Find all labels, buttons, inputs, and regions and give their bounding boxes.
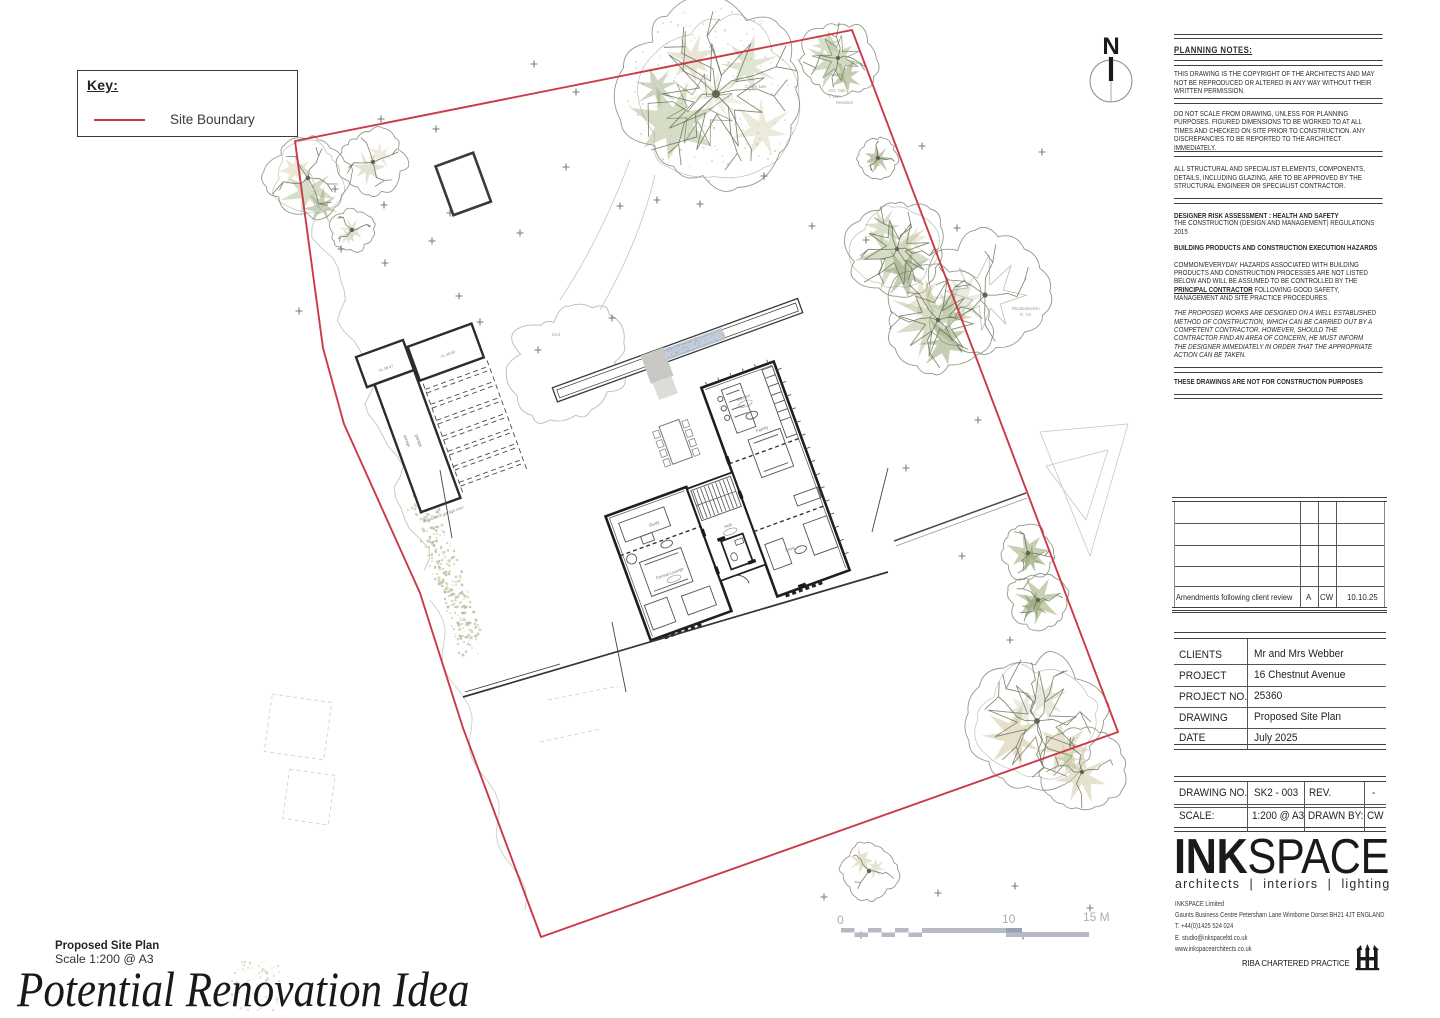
- svg-text:A03. Oak: A03. Oak: [828, 88, 846, 93]
- svg-text:R. 7m: R. 7m: [1020, 312, 1032, 317]
- svg-text:T. 17m: T. 17m: [828, 94, 841, 99]
- svg-text:Crown 14m: Crown 14m: [745, 84, 767, 89]
- svg-text:Rhododendron: Rhododendron: [1012, 306, 1040, 311]
- svg-text:Bed: Bed: [552, 332, 561, 337]
- svg-text:N: N: [1102, 33, 1119, 60]
- svg-text:Retained: Retained: [836, 100, 853, 105]
